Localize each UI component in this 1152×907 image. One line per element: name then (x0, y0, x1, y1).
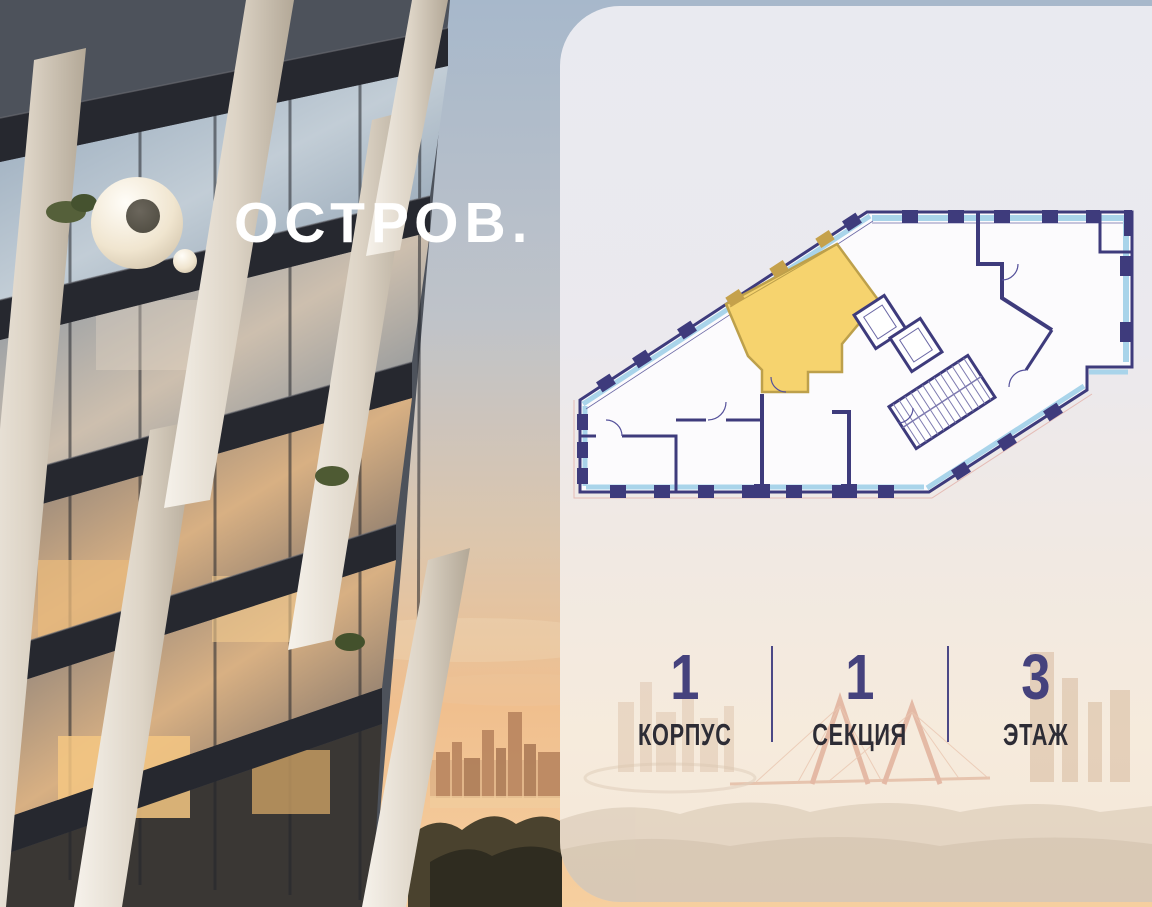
trees (408, 816, 562, 907)
stat-korpus: 1 КОРПУС (598, 642, 771, 750)
building-facade (0, 0, 470, 907)
info-panel: 1 КОРПУС 1 СЕКЦИЯ 3 ЭТАЖ (560, 6, 1152, 902)
logo-mark-icon (88, 156, 212, 280)
stat-etazh: 3 ЭТАЖ (949, 642, 1122, 750)
stat-value: 3 (1021, 648, 1050, 706)
stat-label: ЭТАЖ (1003, 720, 1068, 750)
stat-label: СЕКЦИЯ (813, 720, 908, 750)
floorplan-drawing (570, 194, 1146, 536)
screen: ОСТРОВ. (0, 0, 1152, 907)
stat-value: 1 (845, 648, 874, 706)
stats-row: 1 КОРПУС 1 СЕКЦИЯ 3 ЭТАЖ (598, 642, 1122, 750)
logo-text: ОСТРОВ. (234, 190, 534, 256)
floorplan (570, 194, 1146, 536)
stat-label: КОРПУС (638, 720, 732, 750)
stat-value: 1 (670, 648, 699, 706)
brand-logo: ОСТРОВ. (88, 156, 534, 280)
stat-sekciya: 1 СЕКЦИЯ (773, 642, 946, 750)
